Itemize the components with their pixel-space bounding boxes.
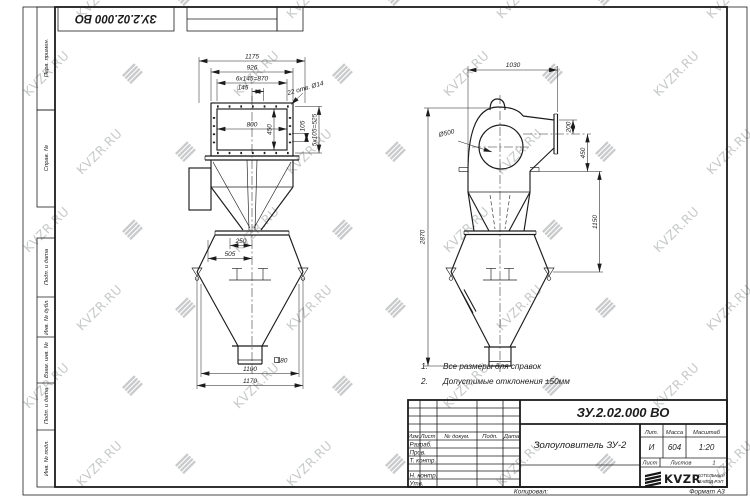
- title-doc-number: ЗУ.2.02.000 ВО: [577, 405, 670, 420]
- dim-front-support-span: 1100: [243, 366, 257, 373]
- front-dimensions: 1175 926 6x145=870 145 22 отв. Ø14 800 4…: [197, 54, 325, 390]
- kvzr-logo-icon: [645, 472, 661, 488]
- front-body: [189, 156, 299, 230]
- dim-front-bolt-span: 6x145=870: [236, 76, 269, 83]
- dim-side-duct-height: 450: [580, 147, 587, 158]
- margin-label-sprav: Справ. №: [44, 145, 50, 171]
- copied-label: Копировал:: [514, 489, 548, 496]
- col-data: Дата: [503, 434, 520, 440]
- dim-front-flange-width: 926: [247, 65, 258, 72]
- sheets-value: 1: [712, 461, 715, 467]
- format-label: Формат А3: [689, 489, 725, 496]
- row-tkontr: Т. контр.: [410, 458, 437, 465]
- col-podp: Подп.: [482, 434, 497, 440]
- col-list: Лист: [420, 434, 436, 440]
- front-hopper: [192, 231, 308, 346]
- kvzr-logo-sub2: ЗАВОД РЭП: [699, 479, 725, 484]
- dim-front-side-span: 5x105=525: [312, 113, 319, 146]
- margin-label-podp2: Подп. и дата: [44, 387, 50, 424]
- lit-value: И: [649, 443, 655, 452]
- kvzr-logo-sub1: КОТЕЛЬНЫЙ: [697, 473, 725, 478]
- drawing-canvas: Перв. примен. Справ. № Подп. и дата Инв.…: [0, 0, 750, 500]
- kvzr-logo-text: KVZR: [664, 472, 701, 486]
- side-shell: [459, 99, 558, 231]
- margin-label-inv-podl: Инв. № подл.: [44, 440, 50, 476]
- dim-front-side-pitch: 105: [300, 120, 307, 131]
- row-nkontr: Н. контр.: [410, 473, 438, 480]
- row-prov: Пров.: [410, 450, 426, 457]
- notes: 1. Все размеры для справок 2. Допустимые…: [420, 362, 570, 386]
- front-view: 1175 926 6x145=870 145 22 отв. Ø14 800 4…: [189, 54, 325, 390]
- drawing-sheet: KVZR.RUKVZR.RUKVZR.RUKVZR.RUKVZR.RUKVZR.…: [0, 0, 750, 500]
- note-2-number: 2.: [420, 377, 428, 386]
- dim-front-holes-note: 22 отв. Ø14: [286, 80, 325, 97]
- mass-label: Масса: [666, 430, 684, 436]
- scale-value: 1:20: [699, 443, 715, 452]
- margin-label-perv: Перв. примен.: [44, 39, 50, 78]
- dim-front-opening-height: 450: [267, 124, 274, 135]
- top-stamp: ЗУ.2.02.000 ВО: [58, 7, 303, 31]
- scale-label: Масштаб: [693, 430, 721, 436]
- col-izm: Изм.: [408, 434, 420, 440]
- top-stamp-doc-number: ЗУ.2.02.000 ВО: [75, 12, 157, 24]
- dim-side-inlet-dia: Ø500: [437, 128, 455, 139]
- sheets-label: Листов: [669, 461, 691, 467]
- dim-side-overall-width: 1030: [506, 62, 521, 69]
- lit-label: Лит.: [644, 430, 659, 436]
- row-razrab: Разраб.: [410, 442, 432, 449]
- margin-label-vzam: Взам. инв. №: [44, 342, 50, 378]
- note-1-text: Все размеры для справок: [443, 362, 542, 371]
- dim-side-duct-offset: 200: [566, 121, 573, 133]
- mass-value: 604: [668, 443, 682, 452]
- dim-front-bolt-pitch: 145: [238, 85, 249, 92]
- front-outlet: [232, 346, 268, 364]
- margin-label-inv-dubl: Инв. № дубл.: [44, 299, 50, 335]
- lifting-lug: [490, 99, 505, 110]
- side-dimensions: 1030 Ø500 200 450 1150 2870: [420, 62, 604, 366]
- dim-front-hopper-width: 1170: [243, 378, 257, 385]
- dim-side-hopper-height: 1150: [592, 215, 599, 229]
- title-product-name: Золоуловитель ЗУ-2: [534, 440, 627, 451]
- dim-front-neck-width: 505: [225, 251, 236, 258]
- dim-front-opening-width: 800: [247, 122, 258, 129]
- dim-side-overall-height: 2870: [420, 229, 427, 245]
- sheet-label: Лист: [642, 461, 658, 467]
- margin-label-podp1: Подп. и дата: [44, 248, 50, 285]
- col-ndoc: № докум.: [444, 434, 470, 440]
- dim-front-outlet-size: 180: [277, 358, 288, 365]
- dim-front-overall-width: 1175: [245, 54, 259, 61]
- note-1-number: 1.: [421, 362, 428, 371]
- title-block: ЗУ.2.02.000 ВО Золоуловитель ЗУ-2 Изм. Л…: [408, 400, 727, 496]
- dim-front-neck-offset: 250: [235, 238, 247, 245]
- row-utv: Утв.: [409, 481, 424, 488]
- side-view: 1030 Ø500 200 450 1150 2870: [420, 62, 604, 372]
- note-2-text: Допустимые отклонения ±50мм: [442, 377, 570, 386]
- drawing-frame: Перв. примен. Справ. № Подп. и дата Инв.…: [23, 7, 747, 495]
